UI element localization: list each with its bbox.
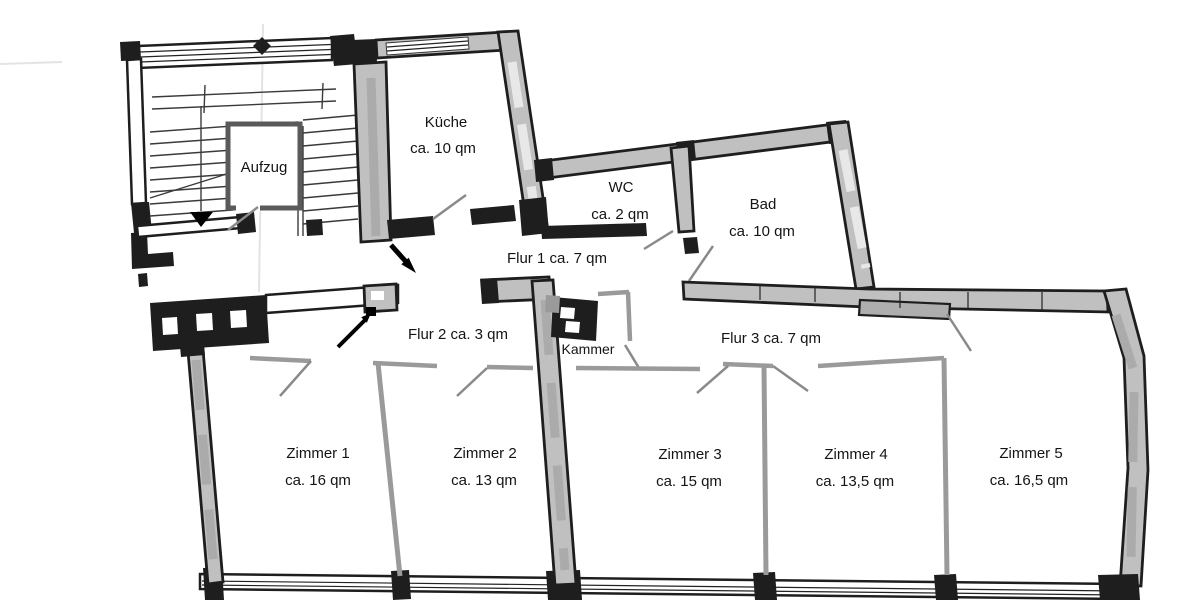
room-partitions	[250, 358, 947, 576]
label-zimmer1-area: ca. 16 qm	[285, 472, 351, 489]
zimmer5-door-swing	[947, 314, 971, 351]
label-bad: Bad	[750, 196, 777, 213]
partition-zimmer3-4	[764, 366, 766, 575]
entrance-arrow	[391, 245, 416, 273]
label-zimmer5: Zimmer 5	[999, 445, 1062, 462]
kitchen-door-swing	[433, 195, 466, 219]
partition-zimmer4-5	[944, 358, 947, 575]
zimmer3-door-swing	[697, 366, 728, 393]
label-zimmer4: Zimmer 4	[824, 446, 887, 463]
label-flur3: Flur 3 ca. 7 qm	[721, 330, 821, 347]
label-zimmer4-area: ca. 13,5 qm	[816, 473, 894, 490]
label-zimmer3-area: ca. 15 qm	[656, 473, 722, 490]
label-wc: WC	[609, 179, 634, 196]
central-wall-kammer	[480, 277, 639, 585]
label-bad-area: ca. 10 qm	[729, 223, 795, 240]
floor-plan-drawing: Aufzug Küche ca. 10 qm WC ca. 2 qm Bad c…	[0, 0, 1200, 600]
corridor2-arrow	[338, 313, 371, 347]
label-zimmer1: Zimmer 1	[286, 445, 349, 462]
floor-plan-page: Aufzug Küche ca. 10 qm WC ca. 2 qm Bad c…	[0, 0, 1200, 600]
label-zimmer2: Zimmer 2	[453, 445, 516, 462]
label-kammer: Kammer	[562, 341, 615, 357]
left-exterior-wall	[179, 334, 223, 584]
zimmer1-door-swing	[280, 361, 311, 396]
door-swings	[280, 314, 971, 396]
corridor3-wall	[683, 282, 1108, 319]
right-exterior-wall	[1104, 289, 1148, 586]
bottom-exterior-wall	[200, 567, 1140, 600]
label-zimmer5-area: ca. 16,5 qm	[990, 472, 1068, 489]
label-kueche: Küche	[425, 114, 468, 131]
kammer-door-swing	[625, 345, 639, 368]
label-wc-area: ca. 2 qm	[591, 206, 649, 223]
label-zimmer2-area: ca. 13 qm	[451, 472, 517, 489]
label-zimmer3: Zimmer 3	[658, 446, 721, 463]
label-flur1: Flur 1 ca. 7 qm	[507, 250, 607, 267]
partition-zimmer1-2	[378, 363, 400, 576]
stair-steps-left	[150, 106, 233, 216]
label-aufzug: Aufzug	[241, 159, 288, 176]
zimmer4-door-swing	[773, 366, 808, 391]
label-kueche-area: ca. 10 qm	[410, 140, 476, 157]
chimney-block-left	[150, 284, 398, 351]
label-flur2: Flur 2 ca. 3 qm	[408, 326, 508, 343]
zimmer2-door-swing	[457, 368, 487, 396]
kitchen-walls	[352, 31, 549, 242]
wc-door-swing	[644, 231, 673, 249]
